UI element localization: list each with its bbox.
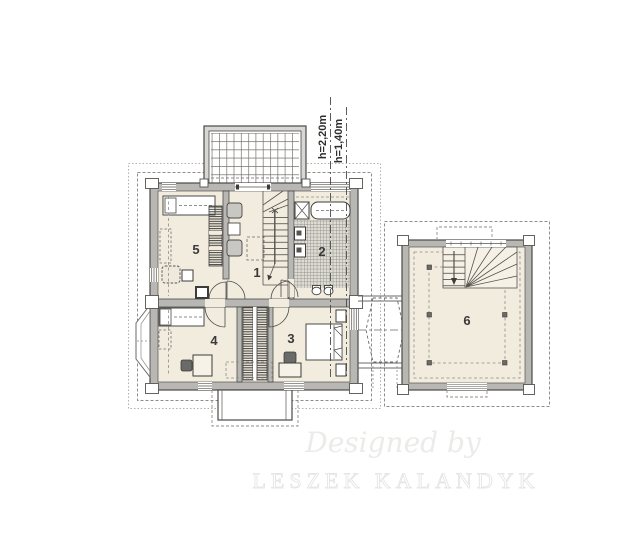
balcony-door: [235, 183, 271, 191]
shower: [295, 202, 309, 219]
bidet: [295, 244, 306, 257]
nightstand-room3-bottom: [336, 364, 346, 376]
window-bathroom-top: [311, 183, 351, 191]
wardrobe-room5: [209, 206, 222, 266]
floor-plan-page: Designed by LESZEK KALANDYK: [0, 0, 638, 556]
chair-room1-b: [227, 240, 242, 256]
armchair-room5: [162, 266, 180, 283]
room-1-label: 1: [253, 265, 260, 280]
window-room3-bottom: [284, 382, 304, 390]
double-bed-room3: [306, 324, 342, 360]
garage-bottom-dashes: [447, 390, 487, 397]
room-3-label: 3: [287, 331, 294, 346]
garage-top-dormer-outline: [437, 227, 492, 240]
floor-plan-drawing: Designed by LESZEK KALANDYK: [0, 0, 638, 556]
watermark-author-name: LESZEK KALANDYK: [252, 468, 539, 493]
nightstand-room3-top: [336, 310, 346, 322]
window-room3-right: [350, 308, 358, 330]
wall-room4-void: [237, 307, 242, 382]
toilet: [295, 227, 306, 240]
room-4-label: 4: [210, 333, 218, 348]
chair-room3: [284, 352, 296, 363]
window-room5-left: [150, 268, 158, 282]
desk-room4: [193, 355, 212, 376]
middle-wall: [158, 299, 350, 307]
side-table-room5: [182, 270, 193, 281]
garage-staircase: [443, 247, 517, 288]
bed-room4: [159, 308, 204, 326]
balcony-deck-grid: [211, 133, 299, 183]
room-5-label: 5: [192, 242, 199, 257]
desk-room3: [279, 363, 301, 377]
chair-room4: [181, 360, 192, 371]
height-label-220: h=2,20m: [317, 115, 329, 160]
watermark-designed-by: Designed by: [304, 426, 482, 459]
height-label-140: h=1,40m: [333, 119, 345, 164]
room-2-bathroom: 2: [294, 197, 350, 295]
garage-top-opening: [446, 240, 506, 247]
room-2-label: 2: [318, 244, 325, 259]
balcony: [204, 126, 306, 183]
table-room1: [228, 223, 240, 235]
room-6-label: 6: [463, 313, 470, 328]
watermark: Designed by LESZEK KALANDYK: [252, 426, 539, 493]
garage-attic: 6: [385, 222, 550, 407]
window-room5-top: [162, 183, 176, 191]
chair-room1-a: [227, 203, 242, 218]
stool-room5: [196, 287, 208, 298]
garage-bottom-window: [447, 383, 487, 390]
window-room4-bottom: [198, 382, 212, 390]
bed-room5: [163, 196, 215, 215]
dormer: [212, 390, 298, 426]
bay-window: [136, 305, 150, 377]
